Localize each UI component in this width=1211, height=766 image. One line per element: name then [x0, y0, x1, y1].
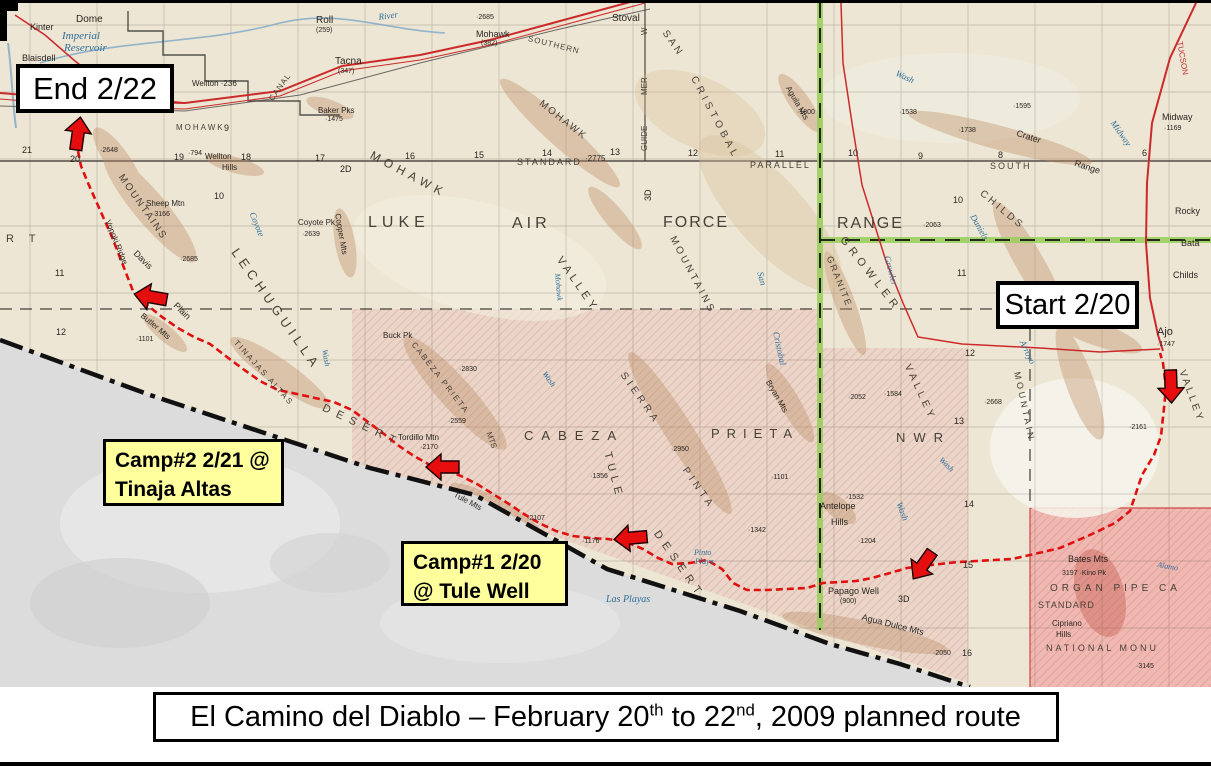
title-part1: El Camino del Diablo – February 20 [190, 701, 649, 733]
title-part3: , 2009 planned route [755, 701, 1021, 733]
start-label-text: Start 2/20 [1005, 289, 1131, 322]
camp2-label-box: Camp#2 2/21 @ Tinaja Altas [103, 439, 284, 506]
map-canvas [0, 3, 1211, 687]
page-title: El Camino del Diablo – February 20th to … [153, 692, 1059, 742]
end-label-box: End 2/22 [16, 64, 174, 113]
title-part2: to 22 [664, 701, 737, 733]
camp2-line2: Tinaja Altas [115, 475, 272, 504]
end-label-text: End 2/22 [33, 71, 157, 107]
footer: El Camino del Diablo – February 20th to … [0, 687, 1211, 765]
camp2-line1: Camp#2 2/21 @ [115, 446, 272, 475]
title-sup1: th [650, 700, 664, 719]
start-label-box: Start 2/20 [996, 281, 1139, 329]
cam1-line2: @ Tule Well [413, 577, 556, 606]
camp1-line1: Camp#1 2/20 [413, 548, 556, 577]
screenshot-frame: LUKEAIRFORCERANGECABEZAPRIETANWRMOHAWKMO… [0, 0, 1211, 766]
title-sup2: nd [736, 700, 755, 719]
map-area: LUKEAIRFORCERANGECABEZAPRIETANWRMOHAWKMO… [0, 3, 1211, 687]
camp1-label-box: Camp#1 2/20 @ Tule Well [401, 541, 568, 606]
